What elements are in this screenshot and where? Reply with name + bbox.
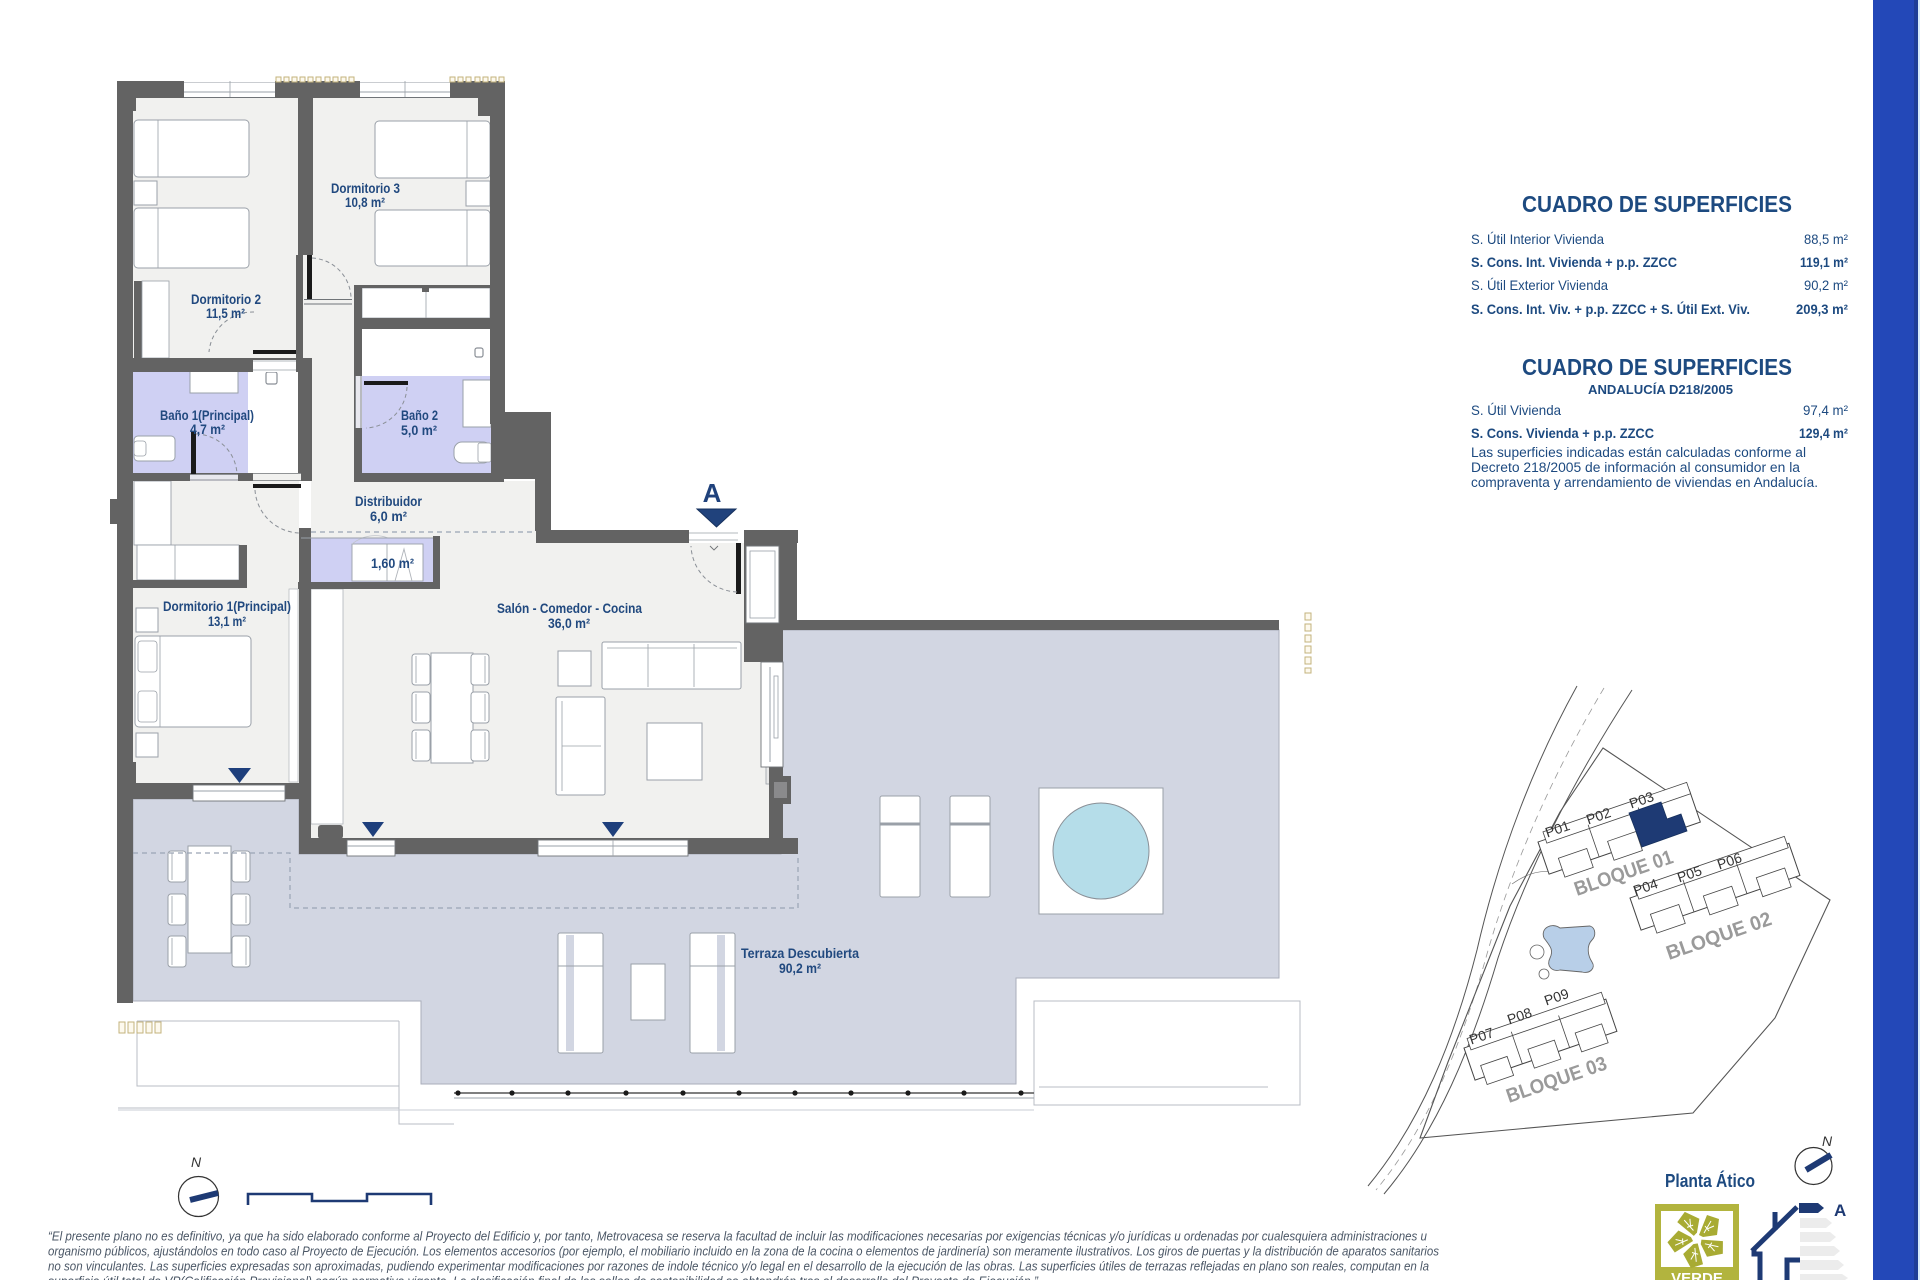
svg-text:“El presente plano no es defin: “El presente plano no es definitivo, ya …	[48, 1229, 1428, 1244]
svg-text:no son vinculantes. Las superf: no son vinculantes. Las superficies expr…	[48, 1259, 1429, 1274]
svg-text:129,4 m²: 129,4 m²	[1799, 425, 1848, 441]
svg-text:88,5 m²: 88,5 m²	[1804, 231, 1848, 247]
svg-text:S. Útil Exterior Vivienda: S. Útil Exterior Vivienda	[1471, 277, 1608, 293]
svg-text:S. Cons. Int. Vivienda + p.p.: S. Cons. Int. Vivienda + p.p. ZZCC	[1471, 254, 1677, 270]
svg-text:S. Útil Vivienda: S. Útil Vivienda	[1471, 402, 1561, 418]
svg-text:90,2 m²: 90,2 m²	[1804, 277, 1848, 293]
svg-text:Terraza Descubierta: Terraza Descubierta	[741, 945, 859, 961]
svg-text:119,1 m²: 119,1 m²	[1800, 254, 1848, 270]
svg-text:A: A	[1834, 1201, 1846, 1220]
svg-text:ANDALUCÍA D218/2005: ANDALUCÍA D218/2005	[1588, 382, 1733, 397]
svg-text:Decreto 218/2005 de informació: Decreto 218/2005 de información al consu…	[1471, 460, 1800, 475]
svg-text:Baño 2: Baño 2	[401, 407, 438, 423]
svg-text:CUADRO DE SUPERFICIES: CUADRO DE SUPERFICIES	[1522, 354, 1792, 380]
svg-text:10,8 m²: 10,8 m²	[345, 194, 385, 210]
svg-text:N: N	[1822, 1133, 1833, 1149]
svg-text:superficie útil total de VP(Ca: superficie útil total de VP(Calificación…	[48, 1274, 1039, 1280]
svg-text:CUADRO DE SUPERFICIES: CUADRO DE SUPERFICIES	[1522, 191, 1792, 217]
svg-text:compraventa y arrendamiento de: compraventa y arrendamiento de viviendas…	[1471, 475, 1818, 490]
svg-text:5,0 m²: 5,0 m²	[401, 422, 437, 438]
svg-text:6,0 m²: 6,0 m²	[370, 508, 407, 524]
svg-text:S. Cons. Vivienda + p.p. ZZCC: S. Cons. Vivienda + p.p. ZZCC	[1471, 425, 1654, 441]
svg-text:S. Útil Interior Vivienda: S. Útil Interior Vivienda	[1471, 231, 1604, 247]
svg-text:90,2 m²: 90,2 m²	[779, 960, 821, 976]
svg-text:Las superficies indicadas está: Las superficies indicadas están calculad…	[1471, 445, 1806, 460]
svg-text:Distribuidor: Distribuidor	[355, 493, 422, 509]
svg-text:209,3 m²: 209,3 m²	[1796, 301, 1848, 317]
svg-text:organismo públicos, ajustándol: organismo públicos, ajustándolos en todo…	[48, 1244, 1439, 1259]
svg-text:Dormitorio 1(Principal): Dormitorio 1(Principal)	[163, 598, 291, 614]
svg-text:4,7 m²: 4,7 m²	[190, 421, 225, 437]
svg-text:Salón - Comedor - Cocina: Salón - Comedor - Cocina	[497, 600, 642, 616]
svg-text:97,4 m²: 97,4 m²	[1803, 402, 1848, 418]
svg-text:36,0 m²: 36,0 m²	[548, 615, 590, 631]
svg-text:Planta Ático: Planta Ático	[1665, 1170, 1755, 1191]
svg-text:11,5 m²: 11,5 m²	[206, 305, 245, 321]
svg-text:A: A	[703, 478, 722, 508]
svg-text:N: N	[191, 1154, 202, 1170]
svg-text:S. Cons. Int. Viv. + p.p. ZZCC: S. Cons. Int. Viv. + p.p. ZZCC + S. Útil…	[1471, 300, 1750, 317]
svg-text:1,60 m²: 1,60 m²	[371, 555, 414, 571]
svg-text:13,1 m²: 13,1 m²	[208, 613, 246, 629]
svg-text:VERDE: VERDE	[1671, 1270, 1723, 1280]
